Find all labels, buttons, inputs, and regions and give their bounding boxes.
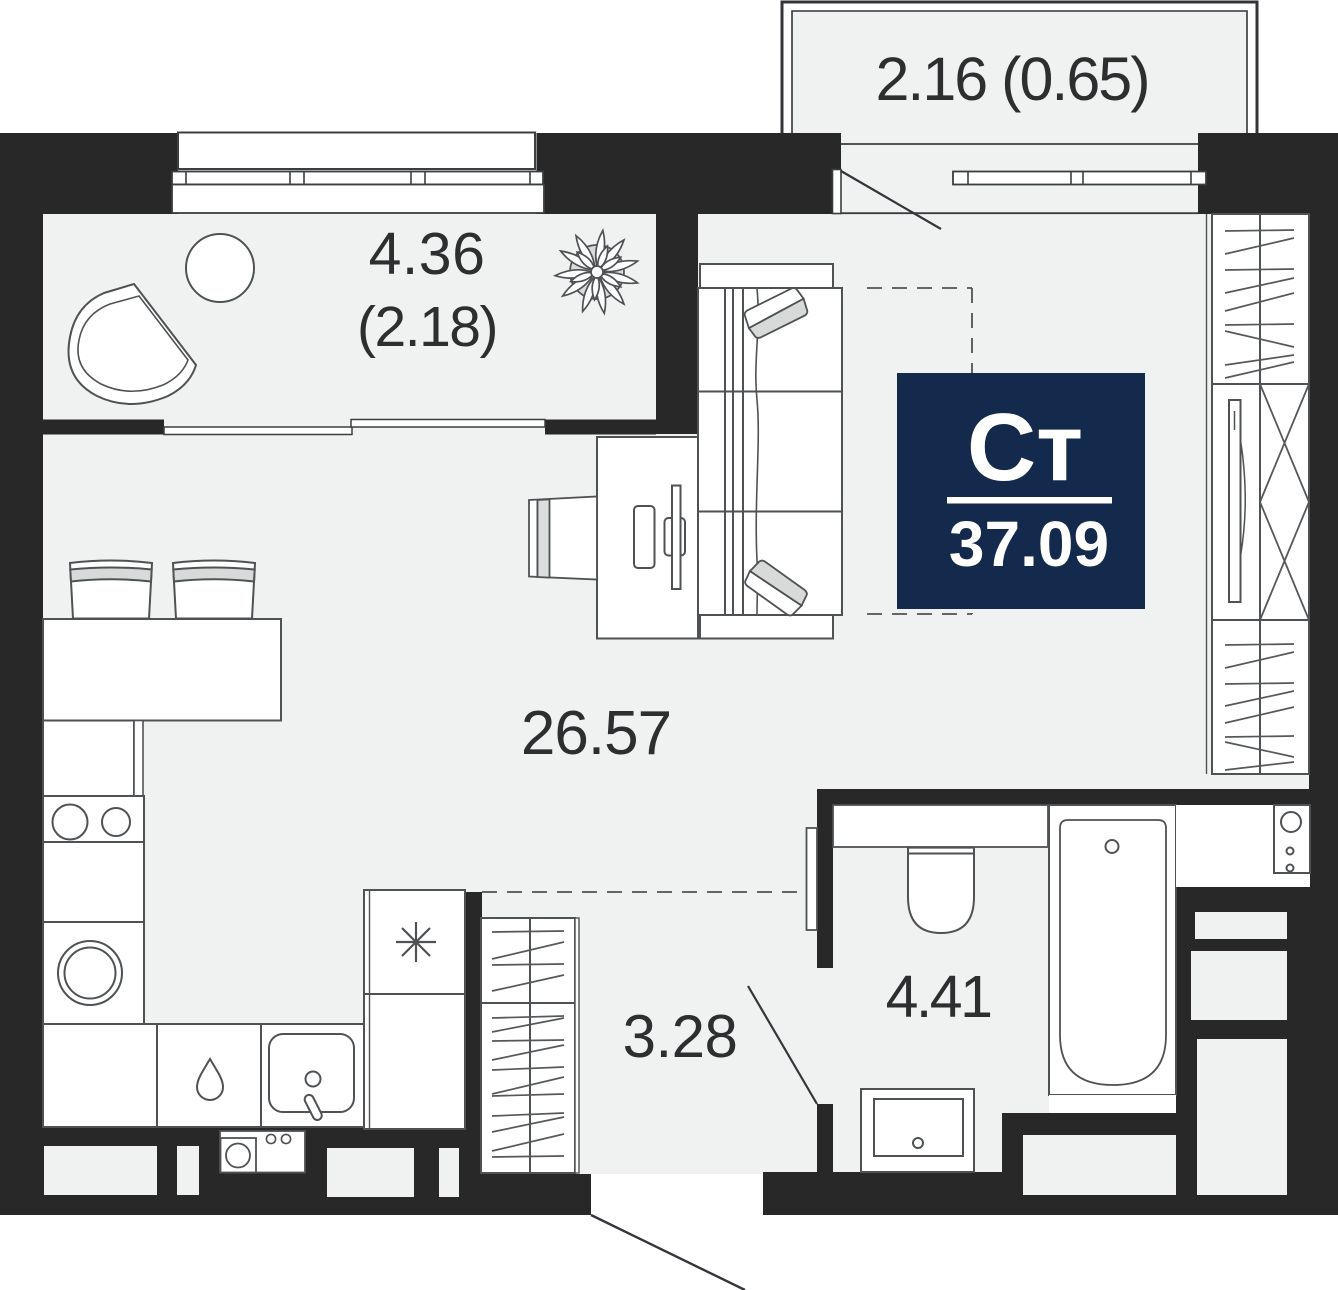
svg-text:4.41: 4.41 [886,964,991,1030]
svg-text:(2.18): (2.18) [357,295,497,359]
svg-text:2.16 (0.65): 2.16 (0.65) [875,45,1148,113]
svg-text:37.09: 37.09 [949,508,1109,580]
svg-text:Ст: Ст [967,394,1083,501]
svg-text:4.36: 4.36 [369,221,486,287]
svg-text:26.57: 26.57 [521,699,671,768]
svg-text:3.28: 3.28 [623,1003,738,1070]
